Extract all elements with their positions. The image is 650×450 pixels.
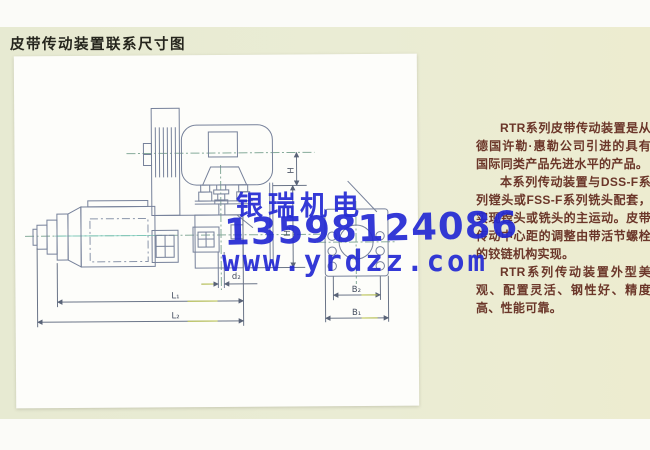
motor xyxy=(181,125,272,186)
product-description: RTR系列皮带传动装置是从德国许勒·惠勒公司引进的具有国际同类产品先进水平的产品… xyxy=(476,119,650,317)
description-paragraph-3: RTR系列传动装置外型美观、配置灵活、钢性好、精度高、性能可靠。 xyxy=(476,263,650,317)
dim-label-b1: B₁ xyxy=(352,308,361,318)
dim-label-h2: H₂ xyxy=(283,227,293,237)
belt-guard xyxy=(143,108,180,215)
dim-label-h: H xyxy=(287,167,297,173)
centerlines xyxy=(24,152,396,292)
dim-label-l1: L₁ xyxy=(171,291,179,301)
technical-drawing: H H₂ d₂ L₁ L₂ xyxy=(14,54,419,409)
spindle-head xyxy=(33,200,155,267)
bolt-hole xyxy=(376,247,384,255)
dim-label-l2: L₂ xyxy=(171,311,179,321)
dimension-d2: d₂ xyxy=(201,272,257,284)
gear-housing xyxy=(152,183,274,289)
dim-label-d2: d₂ xyxy=(232,272,241,282)
catalog-page: 皮带传动装置联系尺寸图 xyxy=(0,0,650,450)
dimension-h2: H₂ xyxy=(250,185,306,267)
bolt-hole xyxy=(376,232,384,240)
description-paragraph-1: RTR系列皮带传动装置是从德国许勒·惠勒公司引进的具有国际同类产品先进水平的产品… xyxy=(476,119,650,173)
bolt-hole xyxy=(328,247,336,255)
dimension-h: H xyxy=(272,152,306,185)
motor-mounting xyxy=(195,167,253,215)
dim-label-b2: B₂ xyxy=(352,285,361,295)
page-title: 皮带传动装置联系尺寸图 xyxy=(10,33,250,54)
bolt-hole xyxy=(328,232,336,240)
dimension-b1: B₁ xyxy=(325,276,388,322)
drawing-panel: H H₂ d₂ L₁ L₂ xyxy=(14,54,419,409)
description-paragraph-2: 本系列传动装置与DSS-F系列镗头或FSS-F系列铣头配套，实现镗头或铣头的主运… xyxy=(476,173,650,263)
dimension-b2: B₂ xyxy=(333,276,380,300)
bolt-hole xyxy=(376,262,384,270)
bolt-hole xyxy=(328,262,336,270)
